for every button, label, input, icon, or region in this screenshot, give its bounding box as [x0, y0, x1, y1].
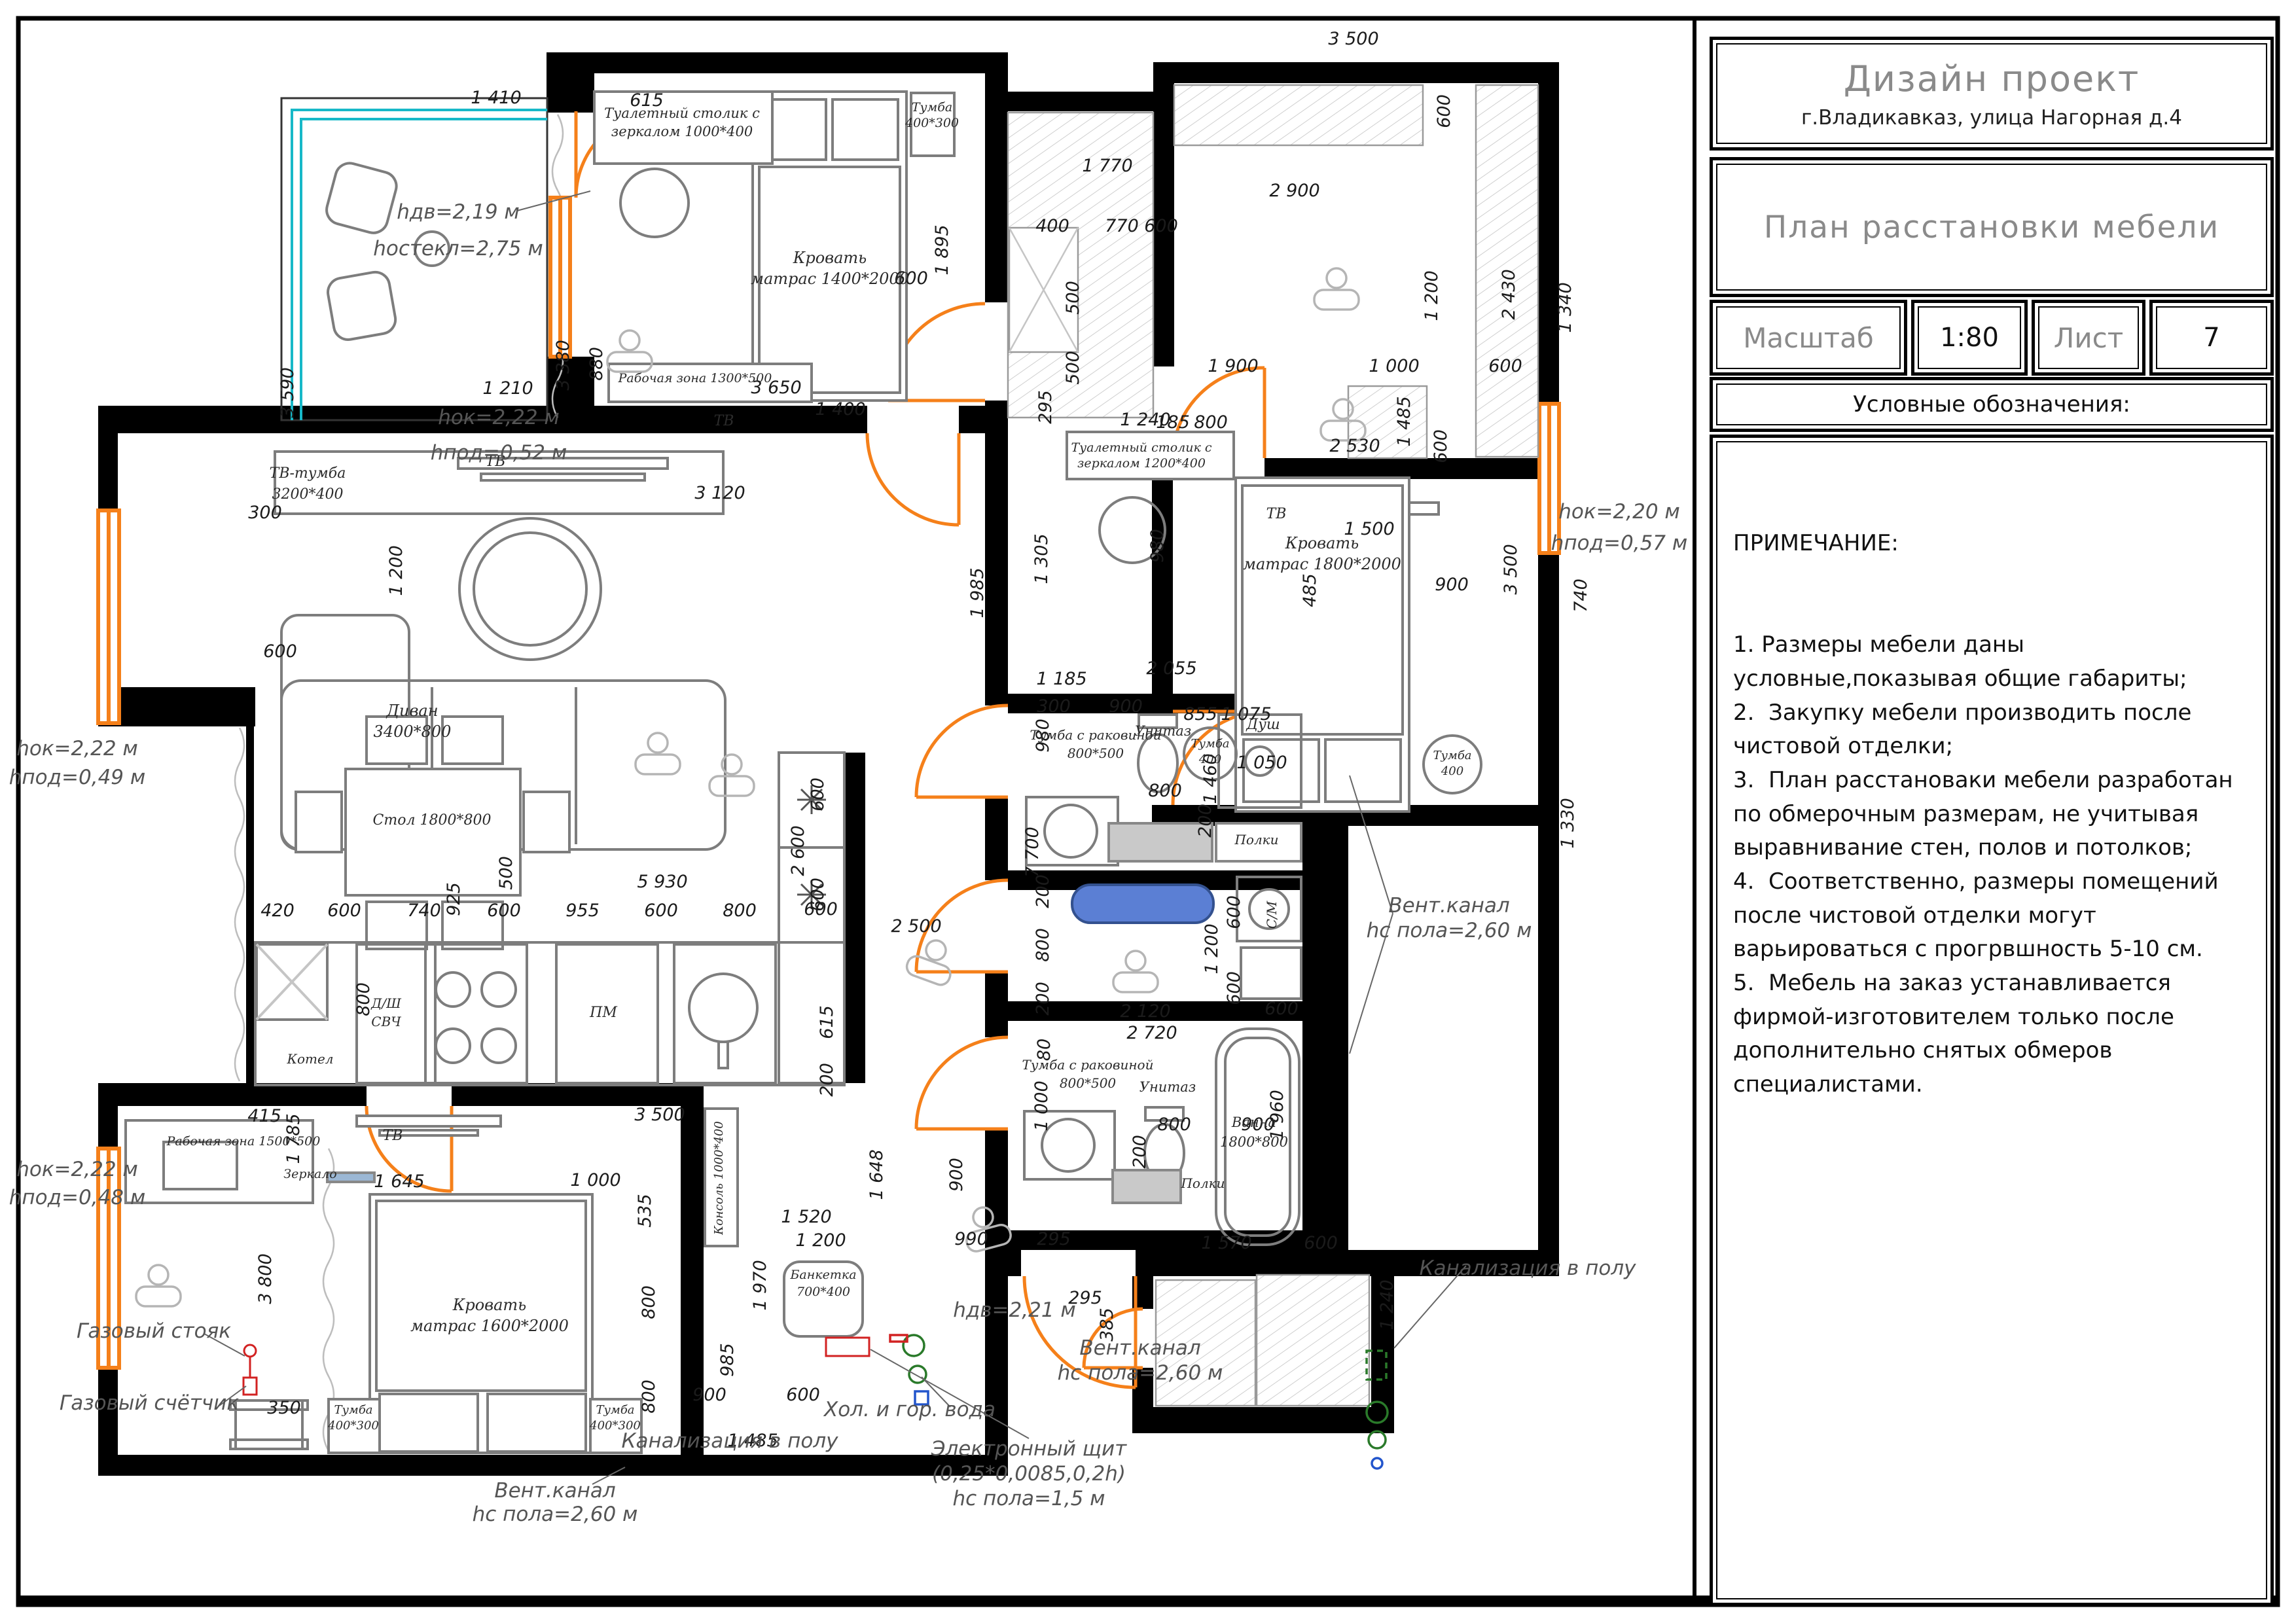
- scale-label-cell: Масштаб: [1710, 300, 1907, 376]
- note-item: 5. Мебель на заказ устанавливается фирмо…: [1733, 967, 2250, 1102]
- stool-bedroom2: [620, 169, 689, 237]
- furniture-label: Рабочая зона 1300*500: [618, 371, 772, 385]
- annotation-label: Хол. и гор. вода: [823, 1398, 996, 1421]
- hob: [425, 944, 527, 1083]
- dimension-label: 3 590: [278, 367, 298, 418]
- dimension-label: 350: [267, 1398, 301, 1418]
- dimension-label: 300: [248, 503, 282, 523]
- annotation-label: hок=2,20 м: [1558, 500, 1680, 524]
- furniture-label: Туалетный столик с: [604, 105, 760, 121]
- dimension-label: 500: [1063, 281, 1083, 315]
- round-mirror-rug: [459, 518, 601, 660]
- dimension-label: 7 700: [1022, 827, 1043, 877]
- dimension-label: 1 200: [1422, 270, 1442, 321]
- furniture-label: С/М: [1264, 901, 1280, 929]
- furniture-label: Стол 1800*800: [373, 812, 492, 829]
- dimension-label: 600: [327, 901, 361, 921]
- annotation-label: hс пола=2,60 м: [1058, 1361, 1223, 1385]
- dimension-label: 925: [444, 882, 464, 916]
- furniture-label: 1800*800: [1220, 1134, 1288, 1150]
- annotation-label: Канализация в полу: [622, 1429, 839, 1453]
- annotation-label: hс пола=2,60 м: [1367, 919, 1532, 942]
- door-bath1: [916, 705, 1008, 797]
- furniture-label: Рабочая зона 1500*500: [166, 1134, 321, 1149]
- note-item: 2. Закупку мебели производить после чист…: [1733, 696, 2250, 764]
- furniture-label: матрас 1400*2000: [751, 270, 909, 288]
- furniture-label: СВЧ: [371, 1014, 401, 1029]
- annotation-label: hпод=0,49 м: [9, 766, 146, 789]
- dimension-label: 600: [1144, 216, 1178, 236]
- dimension-label: 1 985: [967, 567, 988, 618]
- dimension-label: 600: [808, 878, 828, 912]
- dimension-label: 1 200: [386, 545, 406, 596]
- dimension-label: 295: [1037, 1229, 1071, 1249]
- furniture-label: ПМ: [589, 1005, 617, 1021]
- dimension-label: 800: [1033, 928, 1053, 962]
- dimension-label: 200: [817, 1063, 837, 1097]
- dimension-label: 800: [639, 1285, 659, 1319]
- ironing-board: [1072, 885, 1213, 923]
- furniture-label: Консоль 1000*400: [712, 1121, 726, 1236]
- electric-panel-icon: [826, 1338, 869, 1356]
- dimension-label: 770: [1105, 216, 1139, 236]
- annotation-label: hдв=2,19 м: [397, 200, 520, 224]
- dimension-label: 1 210: [482, 378, 533, 399]
- dimension-label: 5 930: [637, 872, 687, 892]
- dimension-label: 980: [1147, 529, 1168, 563]
- furniture-label: Тумба: [1191, 737, 1229, 751]
- dimension-label: 1 520: [781, 1207, 831, 1227]
- scale-value-cell: 1:80: [1911, 300, 2028, 376]
- dimension-label: 3 380: [553, 340, 573, 390]
- annotation-label: hок=2,22 м: [16, 737, 138, 760]
- furniture-label: матрас 1800*2000: [1243, 555, 1401, 573]
- furniture-label: Тумба с раковиной: [1022, 1057, 1154, 1073]
- dimension-label: 1 970: [750, 1260, 770, 1310]
- dimension-label: 3 500: [634, 1105, 685, 1125]
- dimension-label: 3 500: [1501, 544, 1521, 594]
- furniture-label: Кровать: [452, 1296, 527, 1314]
- furniture-label: Диван: [386, 702, 438, 720]
- furniture-label: Банкетка: [789, 1268, 856, 1282]
- furniture-label: Унитаз: [1135, 723, 1191, 739]
- door-living: [867, 433, 959, 525]
- dimension-label: 1 410: [471, 88, 521, 108]
- scale-label: Масштаб: [1743, 322, 1874, 354]
- dimension-label: 400: [1035, 216, 1069, 236]
- furniture-label: Д/Ш: [370, 995, 402, 1011]
- furniture-label: зеркалом 1200*400: [1077, 456, 1206, 471]
- dimension-label: 900: [1435, 575, 1469, 595]
- dimension-label: 1 330: [1558, 798, 1578, 848]
- note-item: 3. План расстановаки мебели разработан п…: [1733, 764, 2250, 865]
- dimension-label: 740: [407, 901, 441, 921]
- dimension-label: 2 430: [1499, 269, 1519, 319]
- annotation-label: hпод=0,52 м: [431, 441, 567, 465]
- dimension-label: 2 600: [788, 825, 808, 876]
- furniture-label: Тумба: [1433, 749, 1471, 762]
- annotation-label: Электронный щит: [931, 1437, 1127, 1461]
- dimension-label: 740: [1571, 579, 1591, 613]
- dimension-label: 295: [1035, 390, 1056, 424]
- dimension-label: 1 000: [1031, 1080, 1052, 1131]
- furniture-label: 400: [1441, 764, 1463, 778]
- furniture-label: Тумба: [596, 1403, 634, 1417]
- furniture-label: 3400*800: [374, 722, 452, 741]
- dimension-label: 535: [635, 1194, 655, 1228]
- furniture-label: ТВ-тумба: [270, 465, 346, 482]
- dimension-label: 900: [946, 1158, 967, 1192]
- dimension-label: 600: [1265, 999, 1299, 1019]
- dimension-label: 600: [1434, 94, 1454, 128]
- furniture-label: Полки: [1180, 1175, 1225, 1191]
- project-title: Дизайн проект: [1844, 58, 2140, 99]
- dimension-label: 1 240: [1377, 1279, 1397, 1330]
- dimension-label: 600: [1224, 971, 1244, 1005]
- dimension-label: 600: [263, 641, 297, 662]
- furniture-label: Тумба: [912, 100, 952, 115]
- furniture-label: ТВ: [714, 413, 734, 429]
- dimension-label: 1 200: [795, 1230, 846, 1251]
- sink: [674, 944, 776, 1083]
- dimension-label: 955: [565, 901, 600, 921]
- dimension-label: 600: [1224, 895, 1244, 929]
- furniture-label: Душ: [1246, 717, 1280, 733]
- laundry-fixtures: [1072, 877, 1301, 999]
- titleblock-drawing: План расстановки мебели: [1710, 157, 2274, 297]
- annotation-label: hдв=2,21 м: [953, 1298, 1076, 1322]
- furniture-label: Унитаз: [1139, 1079, 1196, 1095]
- dimension-label: 2 500: [891, 916, 941, 936]
- dimension-label: 600: [1304, 1233, 1338, 1253]
- dimension-label: 1 770: [1082, 156, 1132, 176]
- furniture-label: Туалетный столик с: [1071, 440, 1211, 455]
- dimension-label: 3 120: [694, 483, 745, 503]
- annotation-label: Газовый счётчик: [60, 1391, 239, 1415]
- furniture-label: Полки: [1234, 832, 1278, 847]
- water-icons-entry: [890, 1335, 928, 1404]
- dimension-label: 300: [1037, 696, 1071, 717]
- annotation-label: Вент.канал: [1388, 894, 1509, 918]
- dimension-label: 200: [1033, 874, 1053, 908]
- dimension-label: 2 530: [1329, 436, 1380, 456]
- dimension-label: 900: [1109, 696, 1143, 717]
- dimension-label: 420: [260, 901, 295, 921]
- furniture-label: 400*300: [327, 1419, 379, 1433]
- dimension-label: 415: [247, 1106, 281, 1126]
- dimension-label: 1 305: [1031, 533, 1052, 584]
- dimension-label: 200: [1130, 1135, 1150, 1169]
- dimension-label: 500: [1063, 351, 1083, 385]
- dimension-label: 2 900: [1269, 181, 1319, 201]
- door-bath2: [916, 1037, 1008, 1129]
- note-item: 4. Соответственно, размеры помещений пос…: [1733, 865, 2250, 967]
- furniture-label: Ванна: [1231, 1115, 1276, 1130]
- dimension-label: 600: [644, 901, 678, 921]
- dimension-label: 2 120: [1120, 1001, 1170, 1022]
- dimension-label: 1 400: [815, 399, 865, 419]
- annotation-label: hс пола=2,60 м: [473, 1503, 638, 1526]
- dimension-label: 1 485: [1394, 396, 1414, 446]
- dimension-label: 200: [1033, 982, 1053, 1016]
- dimension-label: 1 570: [1201, 1233, 1251, 1253]
- dimension-label: 600: [786, 1385, 820, 1405]
- annotation-label: (0,25*0,0085,0,2h): [932, 1462, 1126, 1486]
- annotation-label: hок=2,22 м: [438, 406, 560, 429]
- notes-heading: ПРИМЕЧАНИЕ:: [1733, 527, 2250, 561]
- dimension-label: 2 720: [1126, 1023, 1177, 1043]
- furniture-label: Зеркало: [283, 1167, 336, 1181]
- dimension-label: 3 500: [1328, 29, 1378, 49]
- dimension-label: 600: [1488, 356, 1522, 376]
- project-address: г.Владикавказ, улица Нагорная д.4: [1801, 106, 2182, 130]
- dimension-label: 1 000: [570, 1170, 620, 1190]
- furniture-label: 3200*400: [272, 486, 344, 503]
- bed-bedroom2: [753, 92, 906, 401]
- sheet-number-cell: 7: [2149, 300, 2274, 376]
- dimension-label: 600: [487, 901, 521, 921]
- annotation-label: hостекл=2,75 м: [373, 237, 543, 260]
- dimension-label: 485: [1300, 573, 1320, 607]
- dimension-label: 800: [639, 1380, 659, 1414]
- scale-value: 1:80: [1940, 323, 1999, 353]
- annotation-label: Газовый стояк: [77, 1319, 231, 1343]
- dimension-label: 1 200: [1202, 923, 1222, 974]
- furniture-label: 800*500: [1060, 1075, 1117, 1091]
- annotation-label: Канализация в полу: [1420, 1257, 1637, 1280]
- sheet-label-cell: Лист: [2032, 300, 2145, 376]
- furniture-label: 400*300: [905, 116, 959, 130]
- furniture-label: ТВ: [1266, 506, 1287, 522]
- titleblock-project: Дизайн проект г.Владикавказ, улица Нагор…: [1710, 37, 2274, 151]
- dimension-label: 1 900: [1208, 356, 1258, 376]
- dimension-label: 900: [692, 1385, 726, 1405]
- dimension-label: 1 895: [932, 224, 952, 275]
- dimension-label: 1 240: [1120, 410, 1170, 430]
- drawing-title: План расстановки мебели: [1764, 209, 2219, 245]
- kitchen-counter: [255, 942, 844, 1085]
- tv-bedroom3: [357, 1116, 501, 1135]
- annotation-label: hок=2,22 м: [16, 1158, 138, 1181]
- dimension-label: 600: [808, 777, 828, 811]
- legend-label: Условные обозначения:: [1853, 391, 2130, 418]
- dimension-label: 1 648: [867, 1149, 887, 1200]
- furniture-label: 700*400: [797, 1285, 850, 1299]
- dimension-label: 800: [1148, 781, 1182, 801]
- dimension-label: 2 055: [1146, 658, 1196, 679]
- balcony-glazing-line: [292, 110, 547, 420]
- furniture-label: Кровать: [1285, 534, 1359, 552]
- dimension-label: 200: [1195, 804, 1215, 838]
- annotation-label: hпод=0,48 м: [9, 1186, 146, 1209]
- dimension-label: 855: [1183, 704, 1217, 724]
- dimension-label: 800: [1194, 412, 1228, 433]
- furniture-label: 400: [1198, 753, 1221, 766]
- dimension-label: 1 185: [1036, 669, 1086, 689]
- sheet-number: 7: [2203, 323, 2219, 353]
- furniture-label: матрас 1600*2000: [410, 1317, 569, 1335]
- dimension-label: 600: [1431, 429, 1451, 463]
- note-item: 1. Размеры мебели даны условные,показыва…: [1733, 628, 2250, 696]
- dimension-label: 1 645: [374, 1171, 424, 1192]
- dimension-label: 500: [496, 856, 516, 890]
- dimension-label: 880: [586, 347, 607, 381]
- furniture-label: Кровать: [793, 249, 867, 267]
- dimension-label: 1 340: [1555, 282, 1575, 332]
- annotation-label: Вент.канал: [494, 1479, 615, 1503]
- furniture-label: Котел: [286, 1051, 333, 1067]
- drawing-sheet: 1 4106153 5903 3801 2101 8956008803 6501…: [0, 0, 2296, 1623]
- dimension-label: 1 000: [1369, 356, 1419, 376]
- furniture-label: 800*500: [1067, 745, 1124, 761]
- furniture-label: ТВ: [383, 1128, 403, 1144]
- annotation-label: Вент.канал: [1079, 1336, 1200, 1360]
- dimension-label: 1 050: [1236, 753, 1287, 773]
- notes-body: ПРИМЕЧАНИЕ: 1. Размеры мебели даны услов…: [1733, 459, 2250, 1102]
- dimension-label: 800: [723, 901, 757, 921]
- furniture-label: зеркалом 1000*400: [611, 124, 753, 139]
- notes-block: ПРИМЕЧАНИЕ: 1. Размеры мебели даны услов…: [1710, 435, 2274, 1606]
- dimension-label: 985: [717, 1343, 738, 1377]
- dimension-label: 990: [954, 1229, 988, 1249]
- annotation-label: hс пола=1,5 м: [952, 1487, 1105, 1510]
- annotation-label: hпод=0,57 м: [1551, 531, 1688, 555]
- dimension-label: 615: [817, 1005, 837, 1039]
- sheet-label: Лист: [2054, 322, 2123, 354]
- dimension-label: 3 800: [255, 1253, 276, 1304]
- furniture-label: Тумба: [334, 1403, 372, 1417]
- dimension-label: 800: [1157, 1115, 1191, 1135]
- legend-cell: Условные обозначения:: [1710, 377, 2274, 432]
